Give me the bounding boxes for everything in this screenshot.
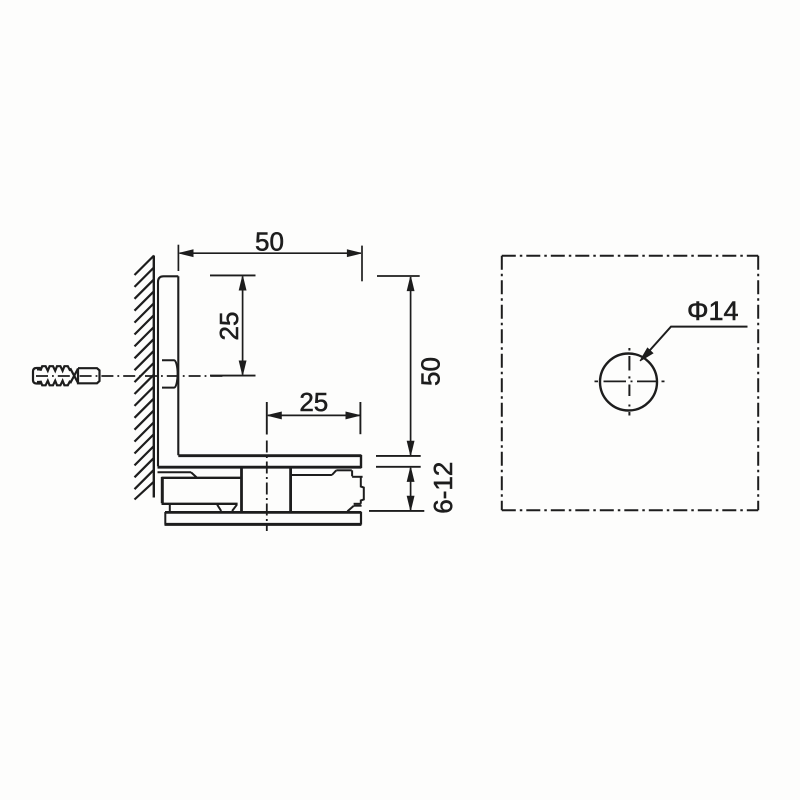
svg-text:50: 50 [415, 357, 445, 386]
svg-text:6-12: 6-12 [428, 462, 458, 514]
svg-text:Φ14: Φ14 [687, 296, 739, 326]
svg-text:25: 25 [299, 387, 328, 417]
svg-text:25: 25 [214, 312, 244, 341]
svg-text:50: 50 [255, 227, 284, 257]
